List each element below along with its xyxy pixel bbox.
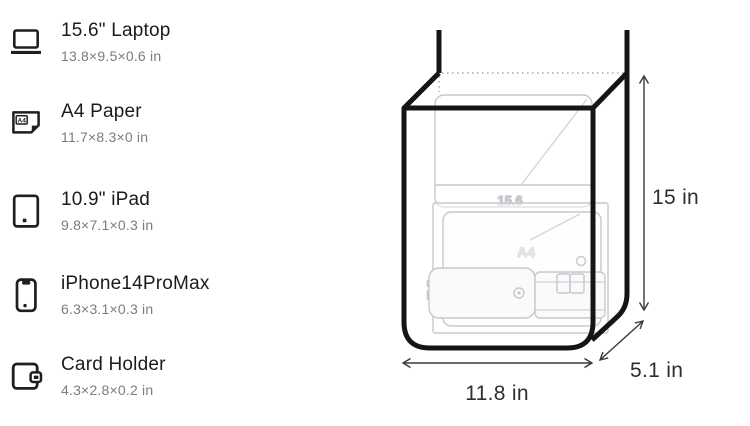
item-title: Card Holder: [61, 354, 166, 376]
item-dimensions: 4.3×2.8×0.2 in: [61, 383, 166, 398]
item-title: 10.9" iPad: [61, 189, 153, 211]
product-dimension-figure: 15.6" Laptop 13.8×9.5×0.6 in A4 A4 Paper…: [0, 0, 750, 426]
ghost-laptop: 15.6: [435, 95, 592, 208]
width-arrow: [403, 359, 592, 368]
item-dimensions: 11.7×8.3×0 in: [61, 130, 148, 145]
card-holder-text: Card Holder 4.3×2.8×0.2 in: [61, 354, 166, 398]
ghost-items: 15.6 A4: [427, 95, 608, 333]
iphone-text: iPhone14ProMax 6.3×3.1×0.3 in: [61, 273, 210, 317]
width-dimension-label: 11.8 in: [465, 382, 529, 405]
bag-hidden-edges: [439, 73, 624, 92]
list-item-iphone: iPhone14ProMax 6.3×3.1×0.3 in: [8, 273, 210, 317]
depth-dimension-label: 5.1 in: [630, 359, 683, 382]
item-dimensions: 6.3×3.1×0.3 in: [61, 302, 210, 317]
ghost-iphone: [427, 268, 535, 318]
item-title: iPhone14ProMax: [61, 273, 210, 295]
height-arrow: [640, 76, 649, 310]
laptop-text: 15.6" Laptop 13.8×9.5×0.6 in: [61, 20, 171, 64]
bag-wireframe-diagram: 15.6 A4: [390, 0, 750, 426]
laptop-icon: [8, 20, 44, 64]
a4-paper-icon: A4: [8, 101, 44, 145]
list-item-ipad: 10.9" iPad 9.8×7.1×0.3 in: [8, 189, 153, 233]
list-item-laptop: 15.6" Laptop 13.8×9.5×0.6 in: [8, 20, 171, 64]
card-holder-icon: [8, 354, 44, 398]
item-dimensions: 9.8×7.1×0.3 in: [61, 218, 153, 233]
item-dimensions: 13.8×9.5×0.6 in: [61, 49, 171, 64]
item-title: 15.6" Laptop: [61, 20, 171, 42]
ipad-icon: [8, 189, 44, 233]
list-item-card-holder: Card Holder 4.3×2.8×0.2 in: [8, 354, 166, 398]
item-title: A4 Paper: [61, 101, 148, 123]
height-dimension-label: 15 in: [652, 186, 699, 209]
fit-items-list: 15.6" Laptop 13.8×9.5×0.6 in A4 A4 Paper…: [0, 0, 390, 426]
iphone-icon: [8, 273, 44, 317]
ipad-text: 10.9" iPad 9.8×7.1×0.3 in: [61, 189, 153, 233]
a4-paper-text: A4 Paper 11.7×8.3×0 in: [61, 101, 148, 145]
list-item-a4-paper: A4 A4 Paper 11.7×8.3×0 in: [8, 101, 148, 145]
a4-icon-badge: A4: [18, 117, 27, 124]
